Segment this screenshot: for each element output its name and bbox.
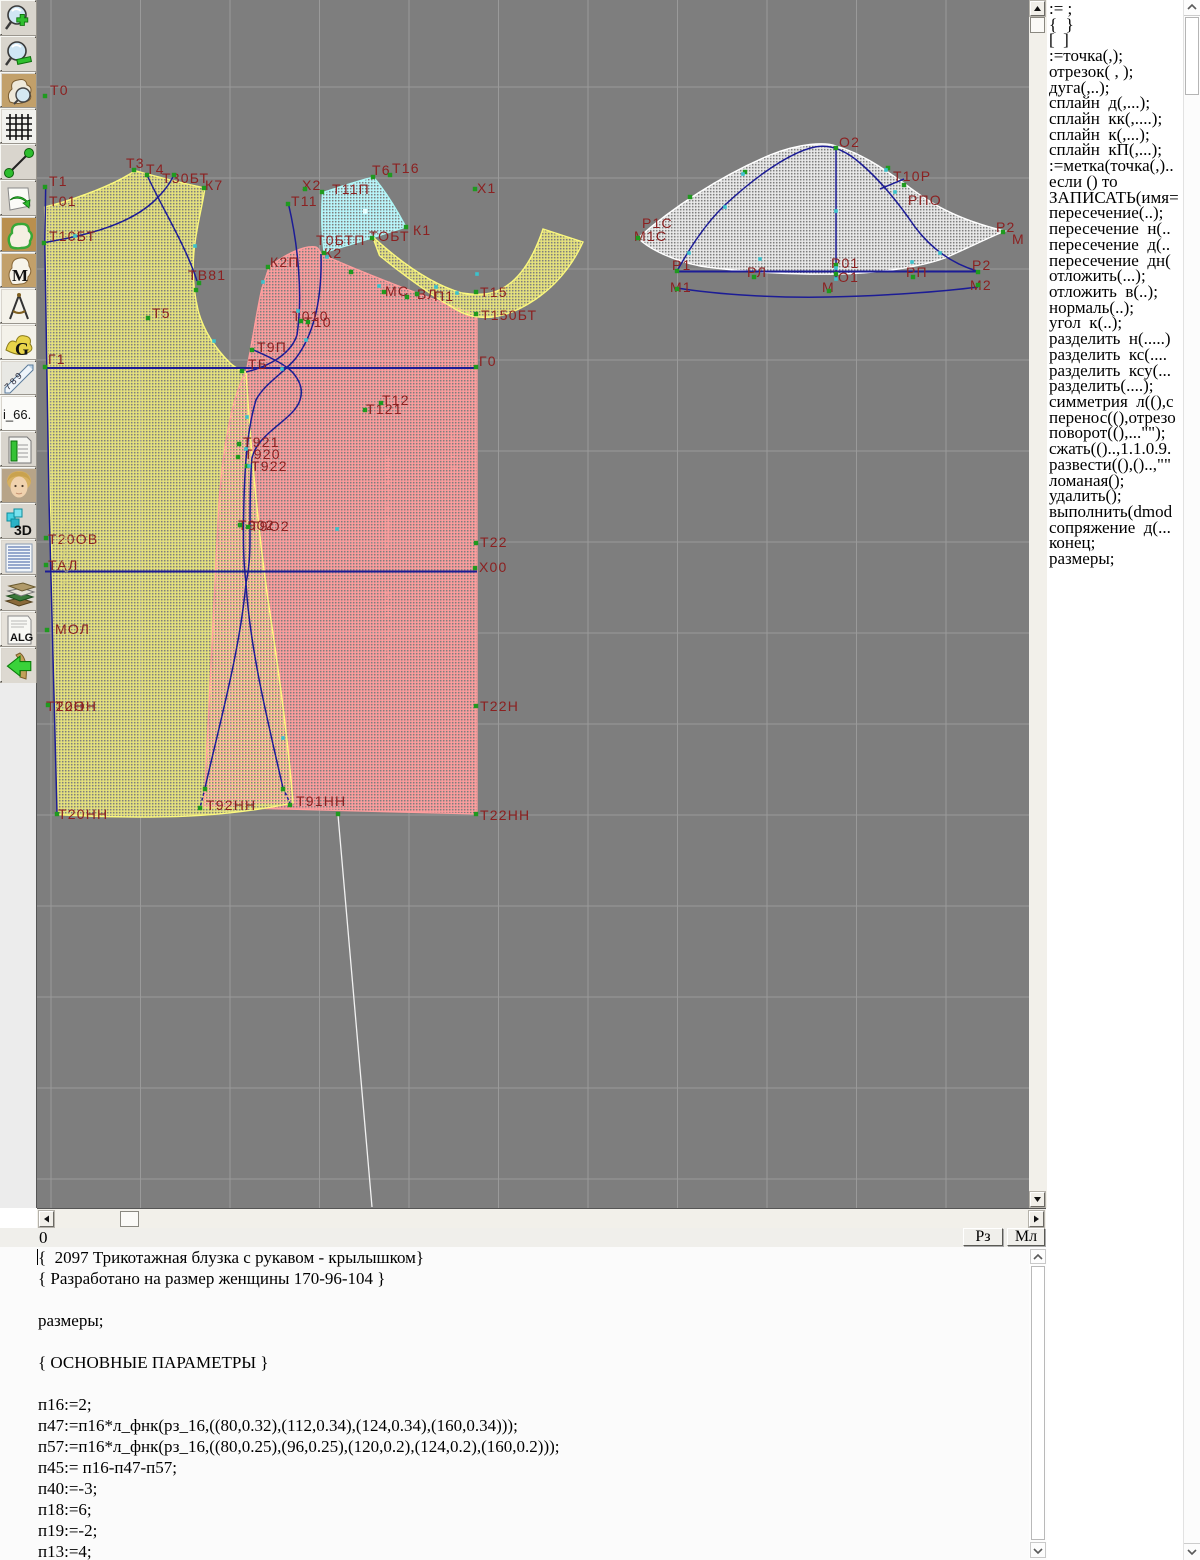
- svg-text:линия бока спинки: линия бока спинки: [383, 455, 393, 550]
- svg-text:Т5: Т5: [152, 305, 171, 321]
- svg-text:СПИНКА РУК: СПИНКА РУК: [60, 520, 70, 586]
- svg-text:Т10Р: Т10Р: [893, 168, 931, 184]
- svg-text:Т2ОН: Т2ОН: [55, 698, 97, 714]
- svg-text:G: G: [15, 339, 29, 359]
- svg-text:Х00: Х00: [479, 559, 508, 575]
- svg-text:Т92НН: Т92НН: [206, 797, 256, 813]
- svg-text:ALG: ALG: [10, 632, 33, 644]
- svg-text:Т922: Т922: [251, 458, 288, 474]
- svg-text:Р2: Р2: [972, 257, 992, 273]
- svg-text:Т01: Т01: [49, 193, 77, 209]
- svg-text:i_66.: i_66.: [3, 407, 31, 422]
- svg-text:Т20ОВ: Т20ОВ: [48, 531, 98, 547]
- svg-text:3D: 3D: [14, 522, 32, 538]
- svg-text:Т22Н: Т22Н: [480, 698, 519, 714]
- svg-text:П1: П1: [434, 288, 454, 304]
- svg-text:Т150БТ: Т150БТ: [481, 307, 537, 323]
- svg-text:45.00 об вниз: 45.00 об вниз: [383, 590, 393, 660]
- svg-text:РЛ: РЛ: [747, 264, 767, 280]
- svg-text:О1: О1: [838, 269, 859, 285]
- svg-text:Т30БТ: Т30БТ: [162, 170, 209, 186]
- svg-text:К2П: К2П: [270, 254, 300, 270]
- svg-text:ТБ: ТБ: [248, 356, 268, 372]
- svg-text:К1: К1: [413, 222, 431, 238]
- svg-text:К7: К7: [205, 177, 223, 193]
- svg-text:ТОБТ: ТОБТ: [369, 228, 410, 244]
- svg-text:РПО: РПО: [908, 192, 942, 208]
- svg-text:Х1: Х1: [477, 180, 497, 196]
- svg-text:С Г-Л-Б: С Г-Л-Б: [448, 432, 459, 474]
- svg-text:М2: М2: [970, 277, 992, 293]
- svg-text:Г1: Г1: [48, 351, 66, 367]
- svg-text:Т9О2: Т9О2: [250, 518, 290, 534]
- svg-text:Т0БТП: Т0БТП: [316, 232, 366, 248]
- svg-text:Т11: Т11: [291, 193, 318, 209]
- svg-text:Т0: Т0: [50, 82, 69, 98]
- svg-text:ТВ81: ТВ81: [188, 267, 226, 283]
- svg-text:Т10БТ: Т10БТ: [49, 228, 96, 244]
- svg-text:Т9П: Т9П: [257, 339, 287, 355]
- svg-text:Т22НН: Т22НН: [480, 807, 530, 823]
- svg-text:М: М: [1012, 231, 1025, 247]
- svg-text:M: M: [12, 266, 28, 285]
- svg-text:МОЛ: МОЛ: [55, 621, 90, 637]
- svg-text:Г0: Г0: [479, 353, 497, 369]
- svg-text:Т16: Т16: [392, 160, 420, 176]
- svg-text:РП: РП: [906, 264, 928, 280]
- svg-text:О2: О2: [839, 134, 860, 150]
- svg-text:Т1: Т1: [49, 173, 68, 189]
- svg-text:Т15: Т15: [480, 284, 508, 300]
- svg-text:Т22: Т22: [480, 534, 508, 550]
- svg-text:Т91НН: Т91НН: [296, 793, 346, 809]
- svg-text:Т20НН: Т20НН: [58, 806, 108, 822]
- svg-text:Т121: Т121: [366, 401, 403, 417]
- svg-text:М1: М1: [670, 279, 692, 295]
- svg-text:Т11П: Т11П: [332, 181, 370, 197]
